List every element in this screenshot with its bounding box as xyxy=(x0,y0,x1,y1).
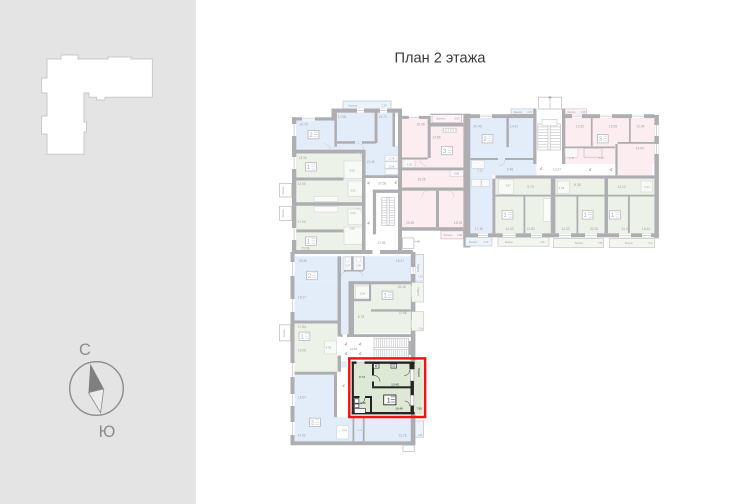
svg-text:20.46: 20.46 xyxy=(473,124,481,128)
svg-text:12.06: 12.06 xyxy=(297,182,305,186)
svg-text:Лоджия: Лоджия xyxy=(417,287,420,296)
svg-text:7.66: 7.66 xyxy=(598,242,603,245)
svg-text:13.52: 13.52 xyxy=(576,124,584,128)
svg-text:7.64: 7.64 xyxy=(418,328,423,331)
svg-text:17.04: 17.04 xyxy=(297,220,305,224)
svg-text:16.78: 16.78 xyxy=(299,122,307,126)
svg-text:3.87: 3.87 xyxy=(505,184,511,188)
svg-text:13.68: 13.68 xyxy=(398,311,406,315)
svg-text:Балкон: Балкон xyxy=(283,328,286,337)
svg-text:15.06: 15.06 xyxy=(417,178,425,182)
svg-text:17.84: 17.84 xyxy=(298,325,306,329)
svg-text:5.38: 5.38 xyxy=(598,156,604,160)
svg-text:4.58: 4.58 xyxy=(349,227,355,231)
svg-text:Балкон: Балкон xyxy=(282,209,285,218)
svg-text:Балкон: Балкон xyxy=(349,103,358,107)
svg-text:25.96: 25.96 xyxy=(301,246,309,250)
svg-text:16.48: 16.48 xyxy=(397,285,405,289)
svg-text:2.11: 2.11 xyxy=(357,428,362,432)
svg-text:17.48: 17.48 xyxy=(475,227,483,231)
svg-text:Лоджия: Лоджия xyxy=(417,264,420,273)
svg-text:1.52: 1.52 xyxy=(407,163,413,167)
svg-text:Балкон: Балкон xyxy=(625,242,634,245)
svg-text:6.78: 6.78 xyxy=(358,315,365,319)
svg-text:4.98: 4.98 xyxy=(457,233,463,237)
svg-text:3.64: 3.64 xyxy=(360,292,366,296)
svg-text:7.66: 7.66 xyxy=(540,241,545,244)
svg-text:23.68: 23.68 xyxy=(350,347,358,351)
svg-text:9.74: 9.74 xyxy=(359,375,365,379)
svg-text:30.58: 30.58 xyxy=(378,181,386,185)
svg-text:16.67: 16.67 xyxy=(298,395,306,399)
svg-text:Лоджия: Лоджия xyxy=(417,368,421,378)
svg-text:3.06: 3.06 xyxy=(389,164,395,168)
svg-text:20.25: 20.25 xyxy=(590,227,598,231)
svg-text:1.78: 1.78 xyxy=(389,156,395,160)
svg-text:9.48: 9.48 xyxy=(507,168,514,172)
svg-text:5.83: 5.83 xyxy=(454,117,460,121)
svg-text:4.14: 4.14 xyxy=(559,186,565,190)
svg-text:9.79: 9.79 xyxy=(527,185,534,189)
svg-text:2.84: 2.84 xyxy=(528,111,533,114)
svg-text:16.47: 16.47 xyxy=(396,259,404,263)
svg-text:12.84: 12.84 xyxy=(636,124,644,128)
svg-text:20.89: 20.89 xyxy=(406,221,414,225)
svg-text:4.24: 4.24 xyxy=(342,428,348,432)
svg-text:0.88: 0.88 xyxy=(454,172,460,176)
svg-text:4.58: 4.58 xyxy=(349,169,355,173)
svg-text:3.27: 3.27 xyxy=(345,265,350,268)
svg-text:3.62: 3.62 xyxy=(350,189,356,193)
svg-text:3.38: 3.38 xyxy=(381,103,387,107)
svg-text:Балкон: Балкон xyxy=(444,233,453,237)
svg-text:1.43: 1.43 xyxy=(569,156,575,160)
svg-text:13.02: 13.02 xyxy=(561,227,569,231)
svg-text:3.62: 3.62 xyxy=(350,211,356,215)
svg-text:С: С xyxy=(79,341,91,359)
svg-text:18.29: 18.29 xyxy=(454,221,462,225)
svg-text:3.29: 3.29 xyxy=(477,168,483,172)
svg-text:Балкон: Балкон xyxy=(514,111,523,114)
svg-text:1.45: 1.45 xyxy=(418,435,423,437)
svg-text:Балкон: Балкон xyxy=(469,241,478,244)
svg-text:13.27: 13.27 xyxy=(553,168,561,172)
svg-text:14.41: 14.41 xyxy=(510,124,518,128)
svg-text:15.08: 15.08 xyxy=(609,124,617,128)
svg-text:1: 1 xyxy=(387,398,391,405)
svg-text:3.68: 3.68 xyxy=(360,401,366,405)
svg-text:16.45: 16.45 xyxy=(416,122,424,126)
svg-text:13.45: 13.45 xyxy=(391,382,399,386)
svg-text:Балкон: Балкон xyxy=(575,242,584,245)
svg-text:16.48: 16.48 xyxy=(395,407,403,411)
svg-text:2.98: 2.98 xyxy=(581,111,586,114)
svg-text:14.85: 14.85 xyxy=(432,136,440,140)
svg-text:4.85: 4.85 xyxy=(326,346,332,350)
svg-text:14.69: 14.69 xyxy=(636,147,644,151)
svg-text:План 2 этажа: План 2 этажа xyxy=(394,51,486,67)
svg-text:11.43: 11.43 xyxy=(621,227,629,231)
svg-text:1.43: 1.43 xyxy=(418,276,423,279)
svg-text:Балкон: Балкон xyxy=(437,117,446,121)
svg-text:13.83: 13.83 xyxy=(526,227,534,231)
svg-text:13.46: 13.46 xyxy=(366,160,374,164)
svg-text:Балкон: Балкон xyxy=(505,241,514,244)
svg-text:3.43: 3.43 xyxy=(484,241,489,244)
svg-text:14.61: 14.61 xyxy=(297,434,305,438)
svg-text:17.98: 17.98 xyxy=(338,115,346,119)
svg-text:13.26: 13.26 xyxy=(398,434,406,438)
svg-text:19.06: 19.06 xyxy=(298,349,306,353)
svg-text:14.43: 14.43 xyxy=(505,227,513,231)
svg-text:25.96: 25.96 xyxy=(299,259,307,263)
svg-text:9.38: 9.38 xyxy=(574,183,581,187)
svg-text:Ю: Ю xyxy=(99,423,116,441)
svg-text:13.12: 13.12 xyxy=(617,185,625,189)
svg-text:13.38: 13.38 xyxy=(298,156,306,160)
svg-text:21.95: 21.95 xyxy=(377,241,385,245)
svg-text:Балкон: Балкон xyxy=(567,111,576,114)
svg-text:13.74: 13.74 xyxy=(378,115,386,119)
svg-text:7.24: 7.24 xyxy=(648,242,653,245)
svg-text:2.38: 2.38 xyxy=(356,265,361,268)
svg-text:7.98: 7.98 xyxy=(416,406,422,410)
svg-text:18.27: 18.27 xyxy=(298,296,306,300)
svg-text:Балкон: Балкон xyxy=(282,186,285,195)
svg-text:15.44: 15.44 xyxy=(642,227,650,231)
svg-text:3.24: 3.24 xyxy=(644,185,650,189)
